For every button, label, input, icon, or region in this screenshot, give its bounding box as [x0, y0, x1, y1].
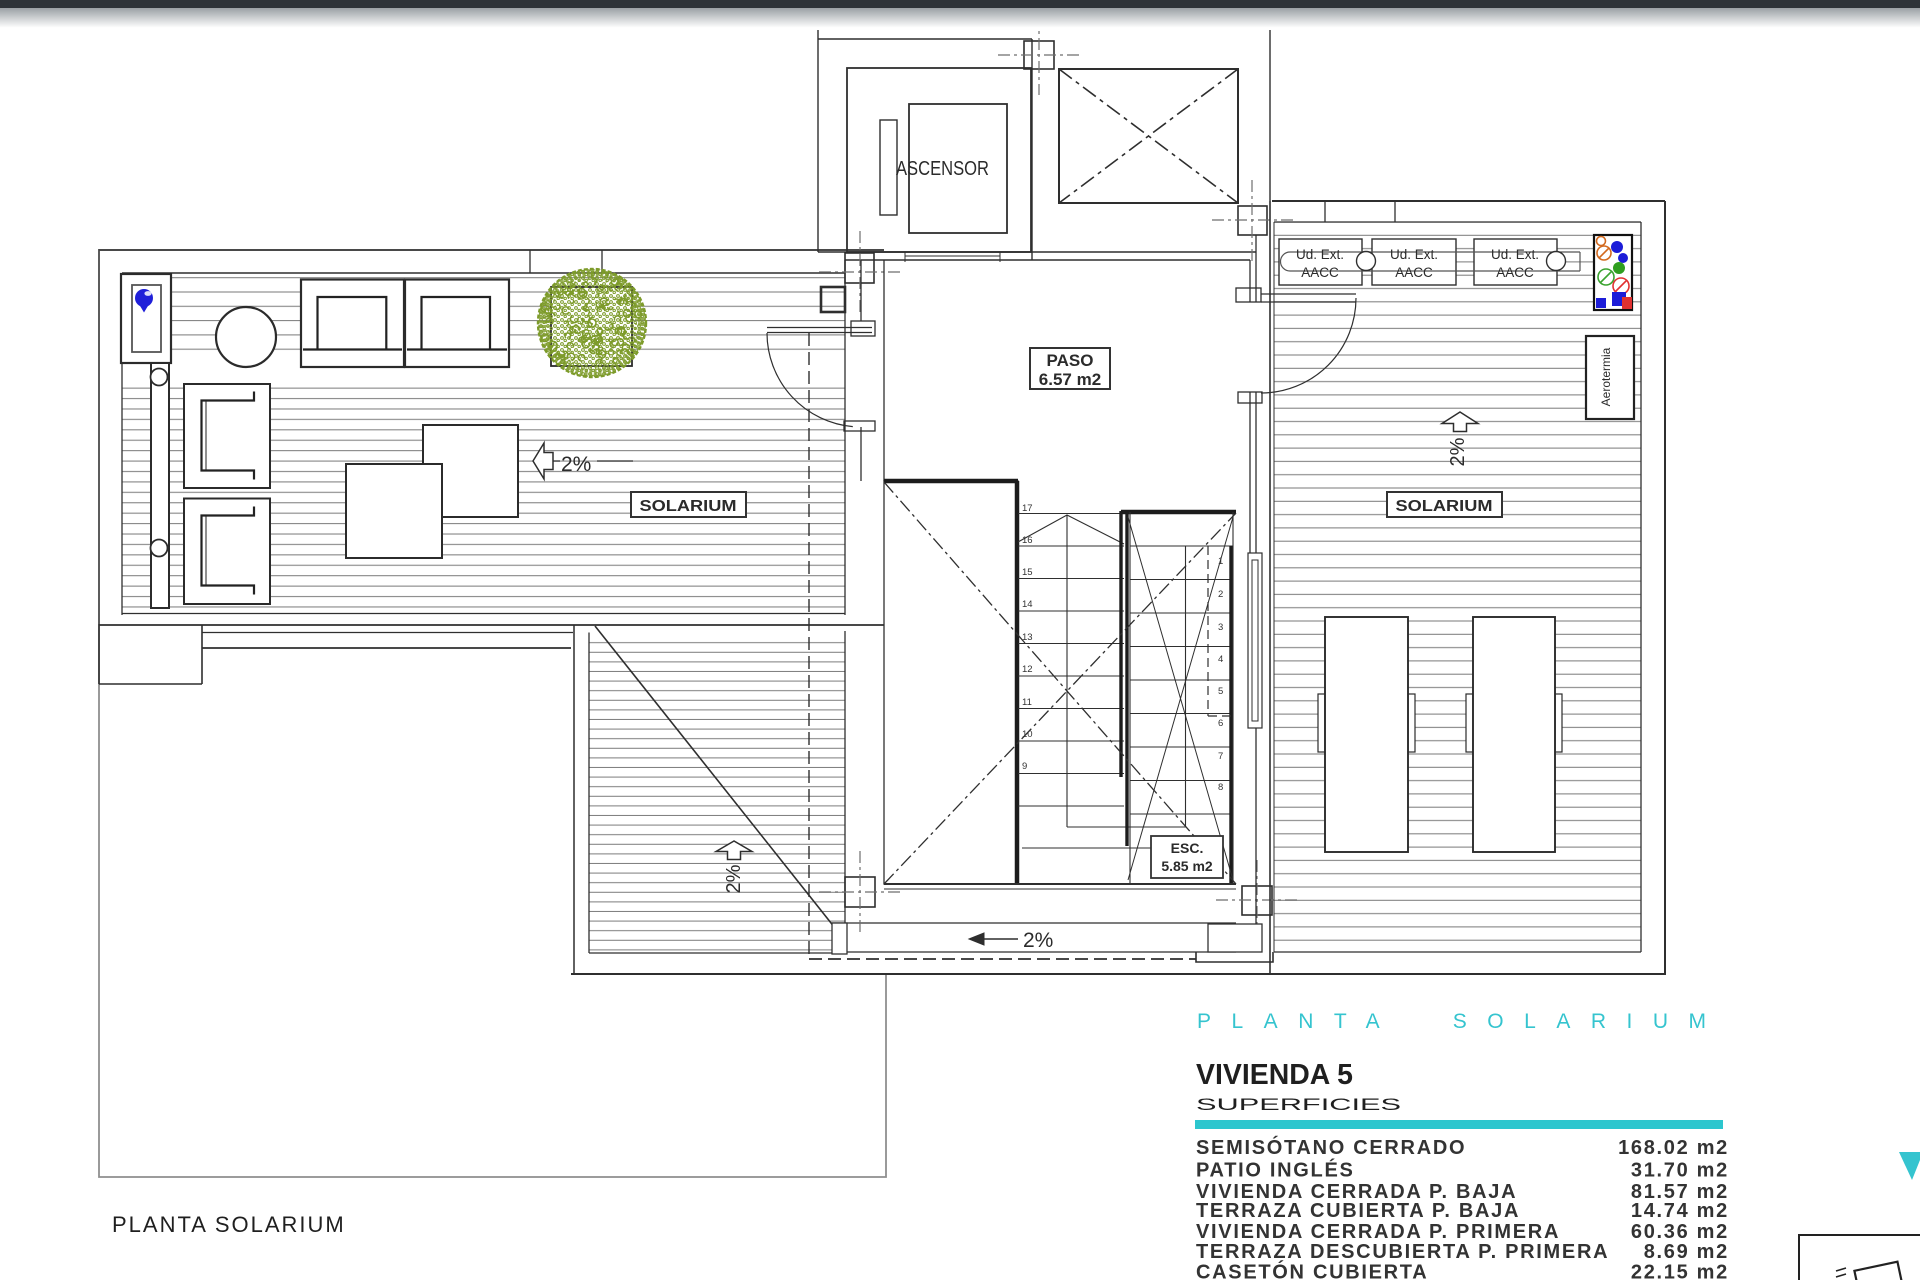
svg-text:31.70 m2: 31.70 m2: [1631, 1160, 1729, 1182]
svg-text:60.36 m2: 60.36 m2: [1631, 1221, 1729, 1243]
svg-text:TERRAZA CUBIERTA P. BAJA: TERRAZA CUBIERTA P. BAJA: [1196, 1200, 1520, 1222]
svg-text:11: 11: [1022, 697, 1032, 708]
svg-text:VIVIENDA 5: VIVIENDA 5: [1196, 1059, 1353, 1091]
svg-text:14: 14: [1022, 599, 1033, 610]
svg-text:4: 4: [1218, 654, 1223, 665]
svg-text:3: 3: [1218, 622, 1223, 633]
svg-text:Ud. Ext.: Ud. Ext.: [1390, 247, 1438, 262]
svg-text:2%: 2%: [1023, 929, 1053, 952]
svg-text:AACC: AACC: [1496, 265, 1534, 280]
svg-text:1: 1: [1218, 556, 1223, 567]
svg-text:13: 13: [1022, 632, 1033, 643]
svg-text:168.02 m2: 168.02 m2: [1618, 1137, 1729, 1159]
svg-text:Ud. Ext.: Ud. Ext.: [1296, 247, 1344, 262]
svg-text:SOLARIUM: SOLARIUM: [1396, 498, 1493, 515]
svg-text:12: 12: [1022, 664, 1033, 675]
svg-text:Ud. Ext.: Ud. Ext.: [1491, 247, 1539, 262]
svg-text:15: 15: [1022, 567, 1033, 578]
svg-text:VIVIENDA CERRADA P. PRIMERA: VIVIENDA CERRADA P. PRIMERA: [1196, 1221, 1560, 1243]
svg-text:PLANTA SOLARIUM: PLANTA SOLARIUM: [1197, 1010, 1727, 1033]
svg-text:8.69 m2: 8.69 m2: [1644, 1241, 1729, 1263]
svg-text:AACC: AACC: [1301, 265, 1339, 280]
svg-text:ASCENSOR: ASCENSOR: [896, 158, 989, 180]
svg-text:2%: 2%: [561, 453, 591, 476]
svg-text:PATIO INGLÉS: PATIO INGLÉS: [1196, 1159, 1355, 1182]
svg-text:PASO: PASO: [1047, 351, 1094, 370]
svg-text:6: 6: [1218, 718, 1223, 729]
svg-text:7: 7: [1218, 751, 1223, 762]
svg-text:2: 2: [1218, 589, 1223, 600]
svg-text:ESC.: ESC.: [1171, 840, 1204, 856]
svg-text:6.57 m2: 6.57 m2: [1039, 370, 1101, 389]
svg-text:CASETÓN CUBIERTA: CASETÓN CUBIERTA: [1196, 1260, 1428, 1280]
svg-text:17: 17: [1022, 503, 1033, 514]
svg-text:16: 16: [1022, 535, 1033, 546]
svg-text:9: 9: [1022, 761, 1027, 772]
svg-text:2%: 2%: [723, 864, 745, 893]
svg-text:Aerotermia: Aerotermia: [1599, 347, 1613, 406]
svg-text:SEMISÓTANO CERRADO: SEMISÓTANO CERRADO: [1196, 1135, 1466, 1159]
svg-text:AACC: AACC: [1395, 265, 1433, 280]
svg-text:14.74 m2: 14.74 m2: [1631, 1200, 1729, 1222]
svg-text:5.85 m2: 5.85 m2: [1161, 858, 1213, 874]
svg-text:SOLARIUM: SOLARIUM: [640, 498, 737, 515]
svg-text:2%: 2%: [1447, 437, 1469, 466]
svg-text:TERRAZA DESCUBIERTA P. PRIMERA: TERRAZA DESCUBIERTA P. PRIMERA: [1196, 1241, 1609, 1263]
svg-text:22.15 m2: 22.15 m2: [1631, 1262, 1729, 1280]
svg-text:8: 8: [1218, 782, 1223, 793]
svg-text:5: 5: [1218, 686, 1223, 697]
svg-text:PLANTA SOLARIUM: PLANTA SOLARIUM: [112, 1212, 346, 1237]
svg-text:SUPERFICIES: SUPERFICIES: [1196, 1095, 1401, 1114]
svg-text:10: 10: [1022, 729, 1033, 740]
